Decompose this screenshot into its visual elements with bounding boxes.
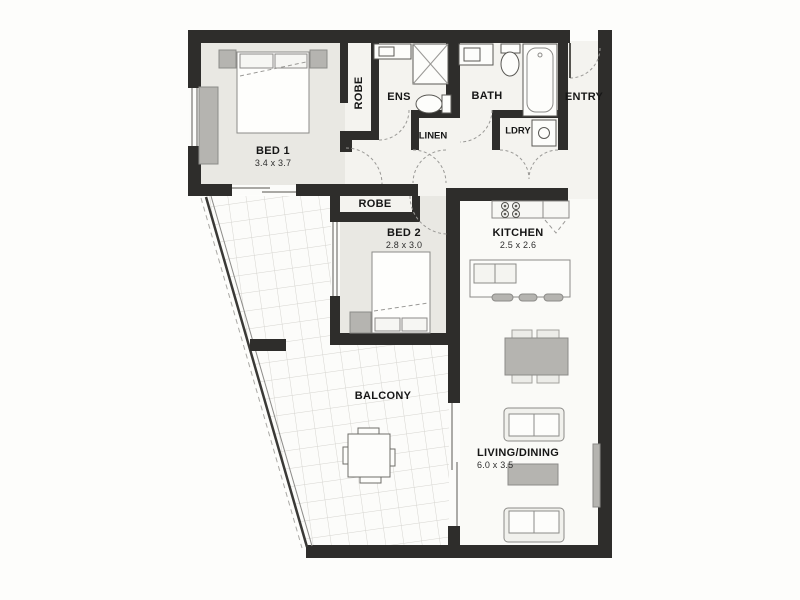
tv-unit: [593, 444, 600, 507]
balcony-chair: [390, 449, 395, 466]
wall-bed2-south: [330, 333, 460, 345]
bed2-pillow: [375, 318, 400, 331]
wall-bottom: [306, 545, 612, 558]
stools: [492, 294, 563, 301]
ens-basin: [379, 47, 394, 56]
floor-plan: BED 1 3.4 x 3.7 ROBE ENS LINEN BATH LDRY…: [0, 0, 800, 600]
wall-robe2-south: [330, 212, 420, 222]
bed2-west-window: [331, 222, 340, 296]
bed2-pillow: [402, 318, 427, 331]
wall-robe1-west: [340, 43, 348, 103]
floor-plan-graphic: [0, 0, 800, 600]
wall-robe2-east: [412, 196, 420, 212]
robe2-floor: [338, 196, 414, 214]
balustrade-pier: [250, 339, 286, 351]
bath-tub-inner: [527, 48, 553, 112]
wall-living-west-upper: [448, 345, 460, 403]
bed1-west-window: [189, 88, 200, 146]
balcony-chair: [358, 428, 379, 434]
balcony-table: [348, 434, 390, 477]
robe1-floor: [348, 43, 371, 135]
wall-hall-south: [296, 184, 418, 196]
bed1-wardrobe: [199, 87, 218, 164]
washing-machine-door: [539, 128, 550, 139]
bed1-pillow: [275, 54, 307, 68]
bath-basin: [464, 48, 480, 61]
wall-ldry-west: [492, 110, 500, 150]
wall-bed2-east: [446, 188, 460, 345]
balcony-chair: [343, 447, 348, 464]
bed1-balcony-slider: [232, 185, 296, 195]
bath-toilet: [501, 52, 519, 76]
bed2-bedside: [350, 312, 371, 333]
dining-table: [505, 338, 568, 375]
laundry-fixtures: [532, 120, 556, 146]
bed1-bedside-right: [310, 50, 327, 68]
coffee-table: [508, 464, 558, 485]
ens-toilet: [416, 95, 442, 113]
ens-cistern: [442, 95, 451, 113]
wall-bed1-door-stub: [340, 140, 352, 152]
wall-bed1-south-left: [188, 184, 232, 196]
bed1-pillow: [240, 54, 273, 68]
living-balcony-slider: [449, 403, 460, 526]
wall-linen-west: [411, 110, 419, 150]
wall-bath-entry-divider: [558, 43, 568, 150]
wall-top: [188, 30, 570, 43]
bed1-bedside-left: [219, 50, 236, 68]
balcony-chair: [360, 477, 381, 483]
balcony-furniture: [343, 428, 395, 483]
wall-bed1-west-upper: [188, 30, 201, 88]
wall-living-west-lower: [448, 526, 460, 545]
wall-kitchen-north: [446, 188, 568, 201]
